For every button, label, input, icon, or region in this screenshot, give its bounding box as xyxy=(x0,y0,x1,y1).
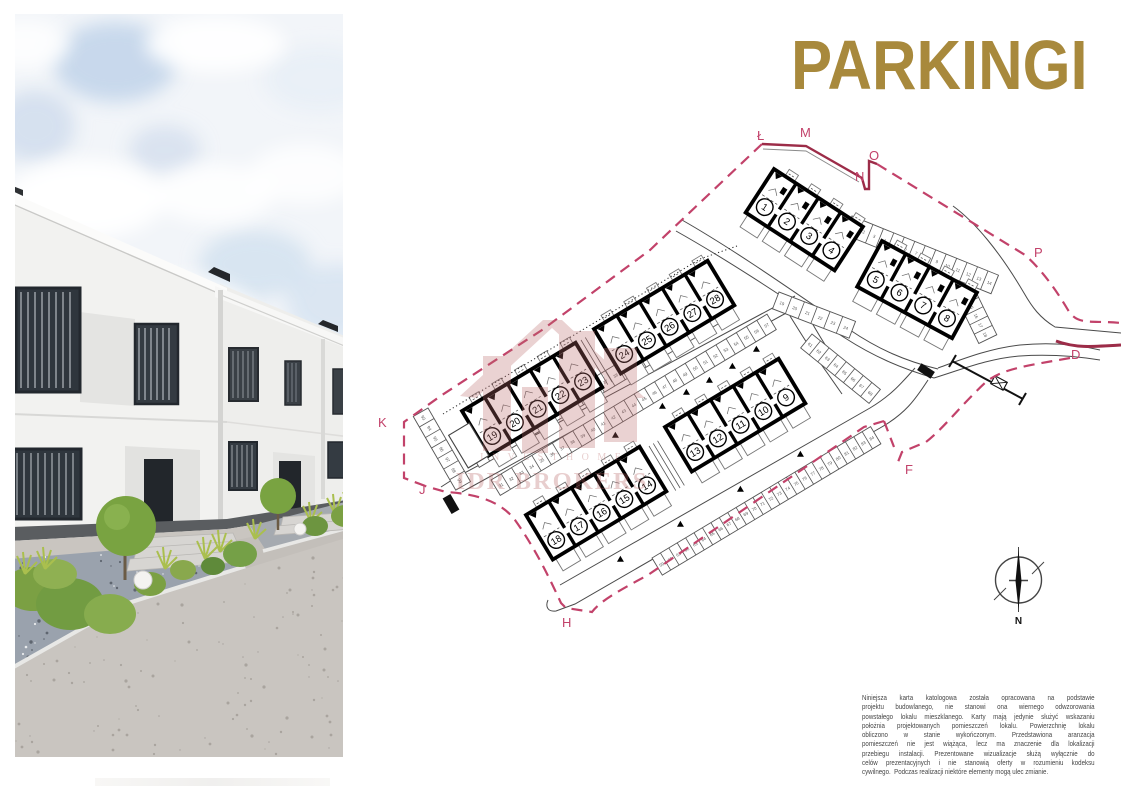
svg-text:J: J xyxy=(419,482,426,497)
svg-text:H: H xyxy=(562,615,571,630)
svg-text:F: F xyxy=(905,462,913,477)
svg-text:Ł: Ł xyxy=(757,128,764,143)
svg-text:N: N xyxy=(855,169,864,184)
svg-text:K: K xyxy=(378,415,387,430)
svg-text:P: P xyxy=(1034,245,1043,260)
svg-text:IDR BROKERS: IDR BROKERS xyxy=(456,468,649,495)
svg-text:M: M xyxy=(800,125,811,140)
svg-text:I N V E S T H O M E: I N V E S T H O M E xyxy=(480,452,624,463)
svg-text:N: N xyxy=(1015,616,1022,627)
svg-text:D: D xyxy=(1071,347,1080,362)
svg-text:O: O xyxy=(869,148,879,163)
